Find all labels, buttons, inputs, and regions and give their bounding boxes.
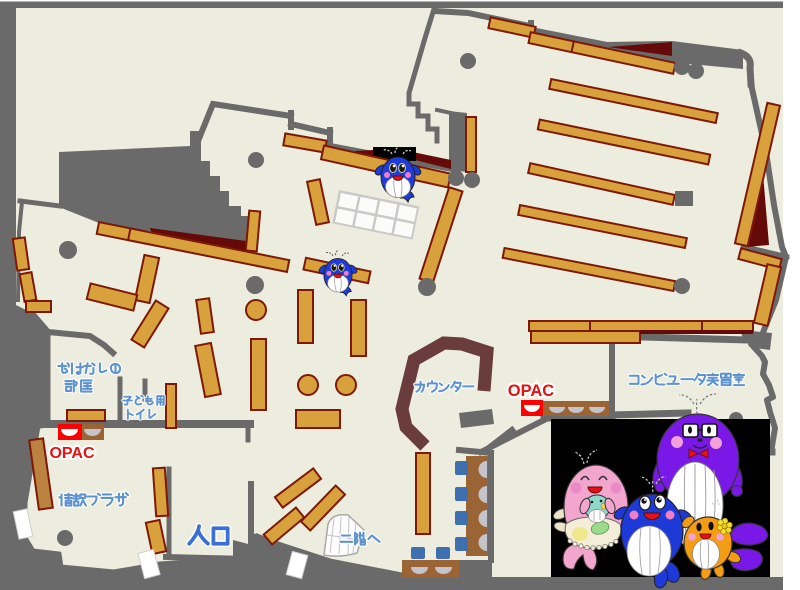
svg-text:OPAC: OPAC (49, 445, 94, 462)
svg-text:OPAC: OPAC (508, 382, 555, 400)
